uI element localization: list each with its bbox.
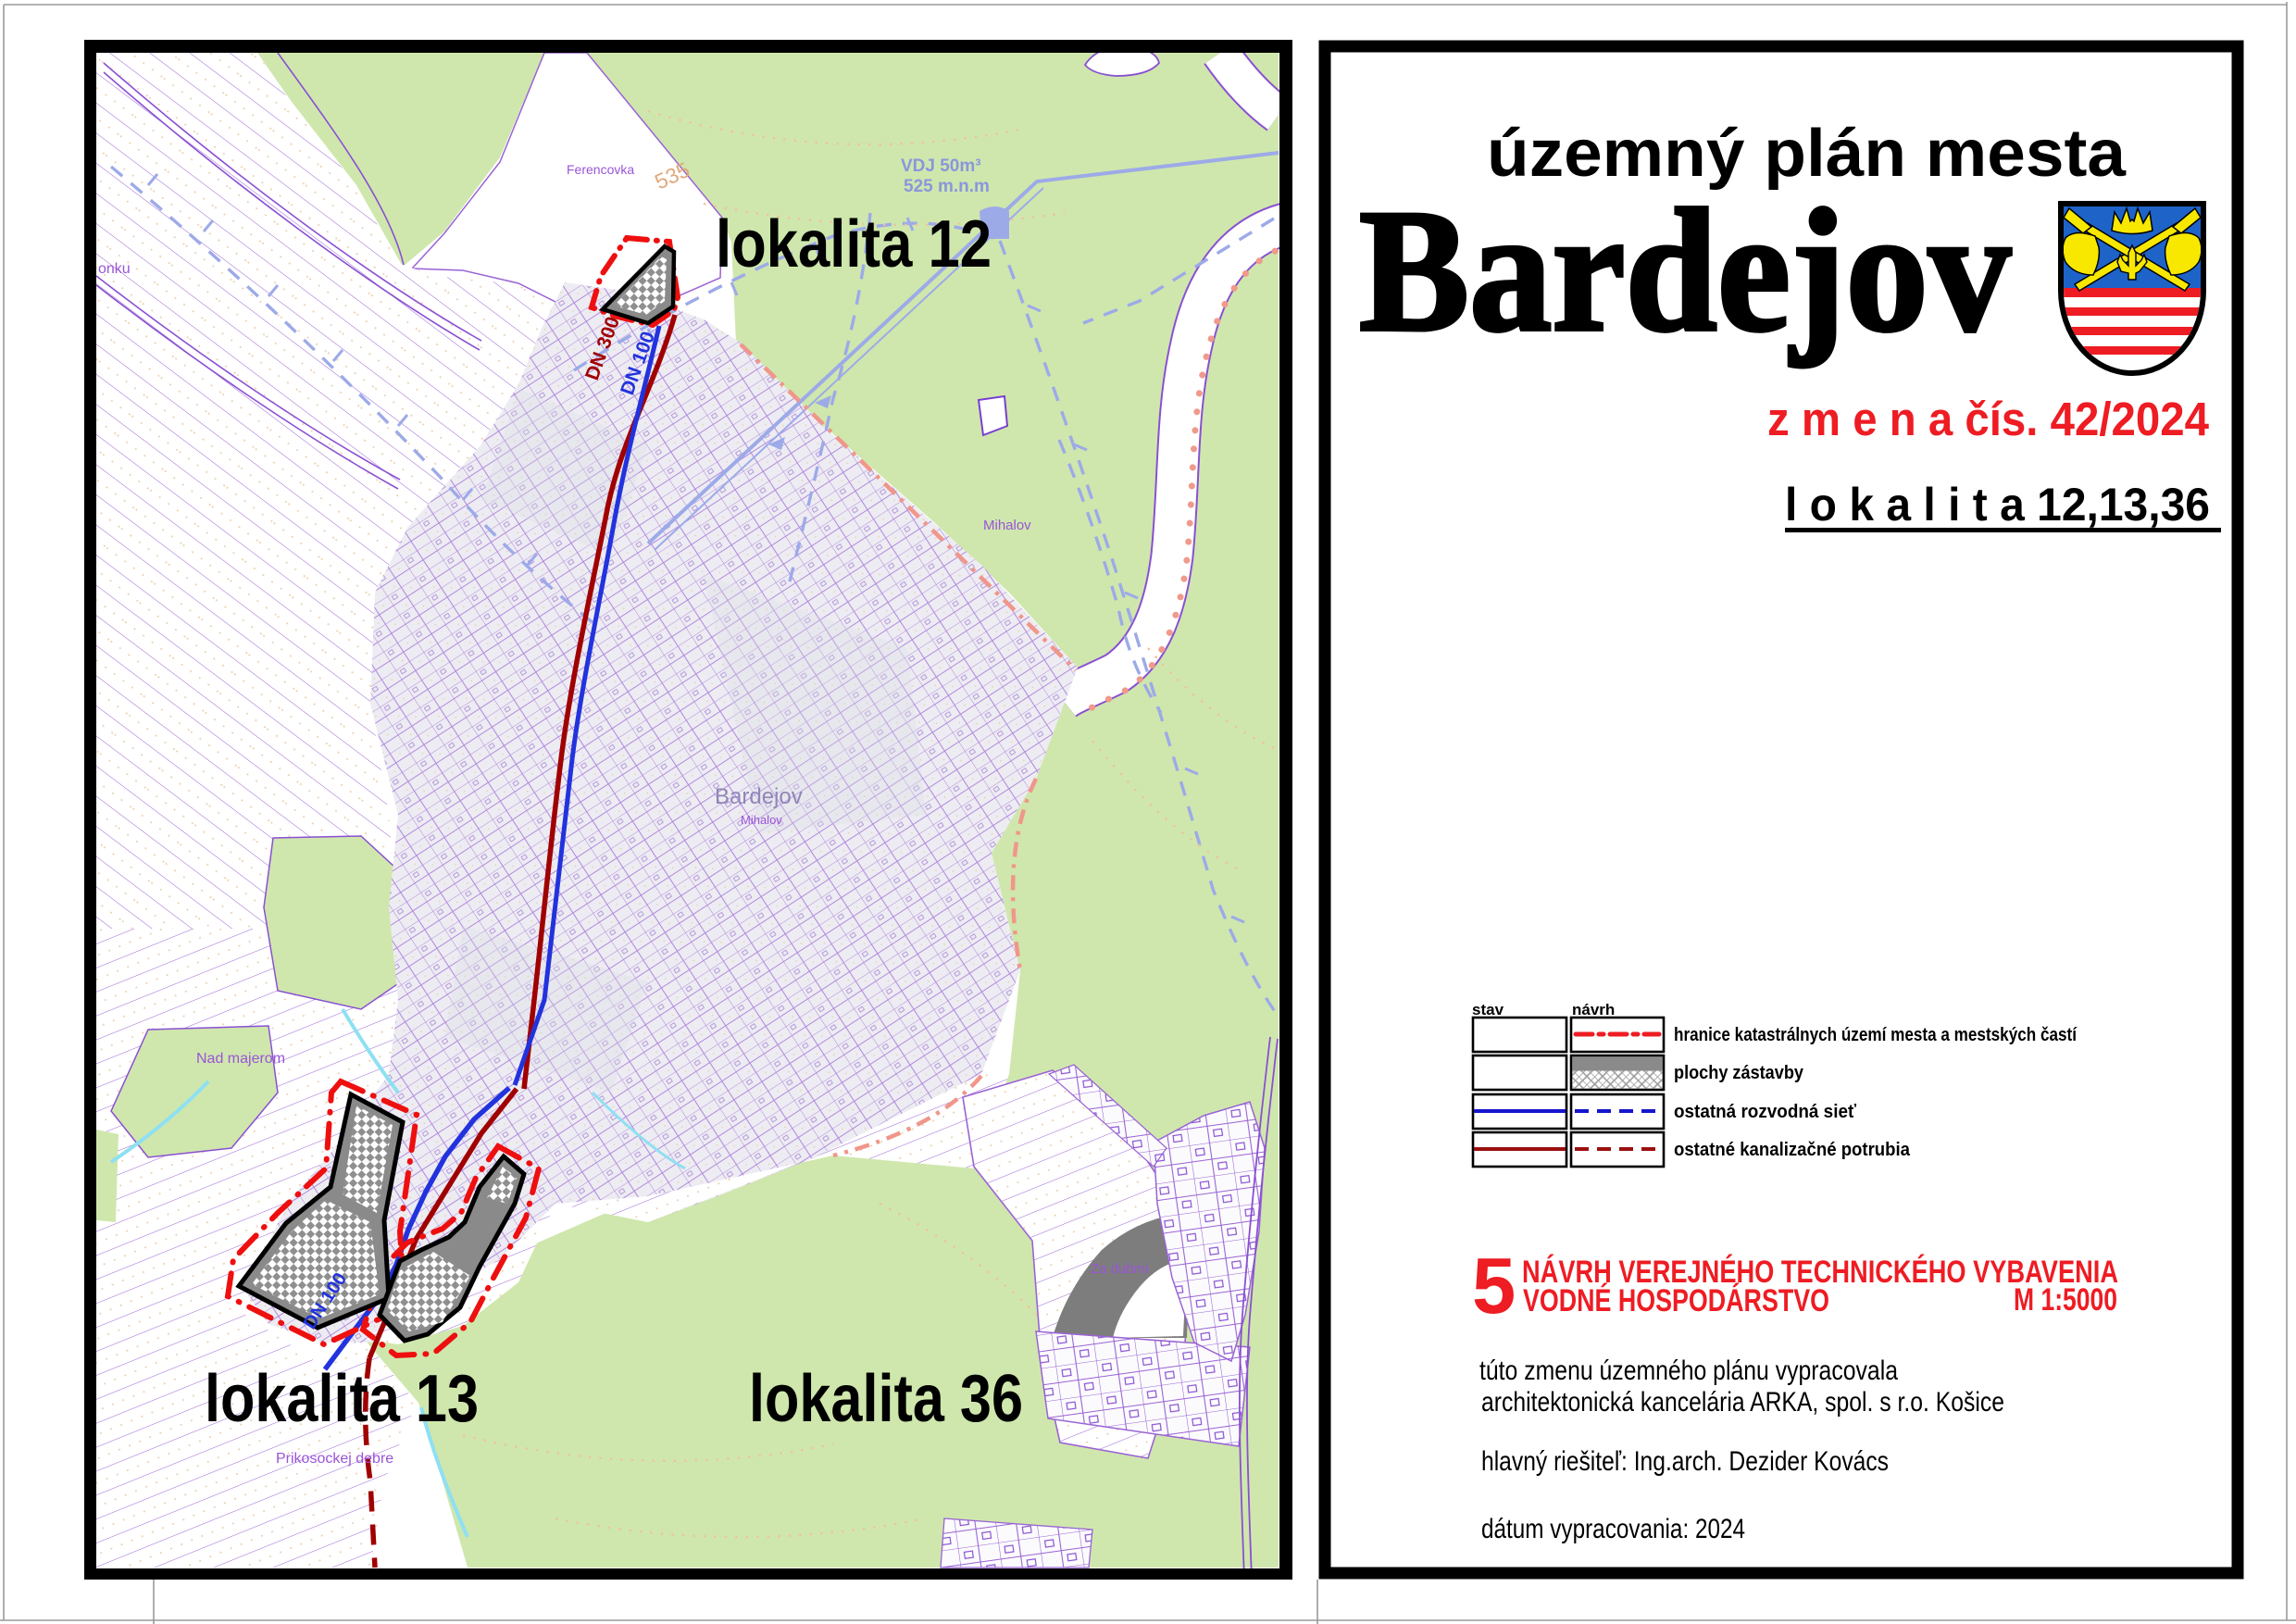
svg-text:VODNÉ HOSPODÁRSTVO: VODNÉ HOSPODÁRSTVO [1523,1283,1829,1318]
svg-text:VDJ 50m³: VDJ 50m³ [901,156,981,176]
svg-text:Prikosockej debre: Prikosockej debre [276,1451,393,1467]
svg-text:ostatné kanalizačné potrubia: ostatné kanalizačné potrubia [1674,1140,1911,1160]
svg-text:architektonická kancelária ARK: architektonická kancelária ARKA, spol. s… [1481,1387,2004,1418]
svg-text:ostatná rozvodná sieť: ostatná rozvodná sieť [1674,1102,1856,1122]
svg-text:plochy zástavby: plochy zástavby [1674,1063,1804,1083]
svg-text:Ferencovka: Ferencovka [567,162,634,177]
svg-text:Bardejov: Bardejov [1359,174,2011,369]
svg-text:návrh: návrh [1572,1001,1615,1018]
svg-text:M 1:5000: M 1:5000 [2014,1282,2117,1318]
svg-text:onku: onku [98,261,131,277]
svg-text:dátum vypracovania: 2024: dátum vypracovania: 2024 [1481,1514,1745,1544]
svg-text:hlavný riešiteľ: Ing.arch. Dez: hlavný riešiteľ: Ing.arch. Dezider Kovác… [1481,1446,1889,1477]
svg-text:Mihalov: Mihalov [983,518,1031,533]
svg-text:Za dubmi: Za dubmi [1091,1261,1149,1277]
svg-text:stav: stav [1472,1001,1504,1018]
svg-text:lokalita 12: lokalita 12 [716,207,992,281]
svg-text:hranice katastrálnych území me: hranice katastrálnych území mesta a mest… [1674,1025,2078,1045]
svg-text:Bardejov: Bardejov [715,784,803,809]
svg-text:Mihalov: Mihalov [741,813,782,827]
svg-text:Nad majerom: Nad majerom [196,1051,285,1067]
svg-text:z m e n a čís. 42/2024: z m e n a čís. 42/2024 [1767,393,2210,445]
svg-text:lokalita 36: lokalita 36 [749,1362,1023,1436]
svg-text:5: 5 [1472,1243,1516,1330]
svg-text:l o k a l i t a 12,13,36: l o k a l i t a 12,13,36 [1785,479,2210,531]
svg-text:lokalita 13: lokalita 13 [205,1362,479,1436]
svg-text:túto zmenu územného plánu vypr: túto zmenu územného plánu vypracovala [1479,1355,1898,1386]
svg-text:525 m.n.m: 525 m.n.m [904,177,990,196]
